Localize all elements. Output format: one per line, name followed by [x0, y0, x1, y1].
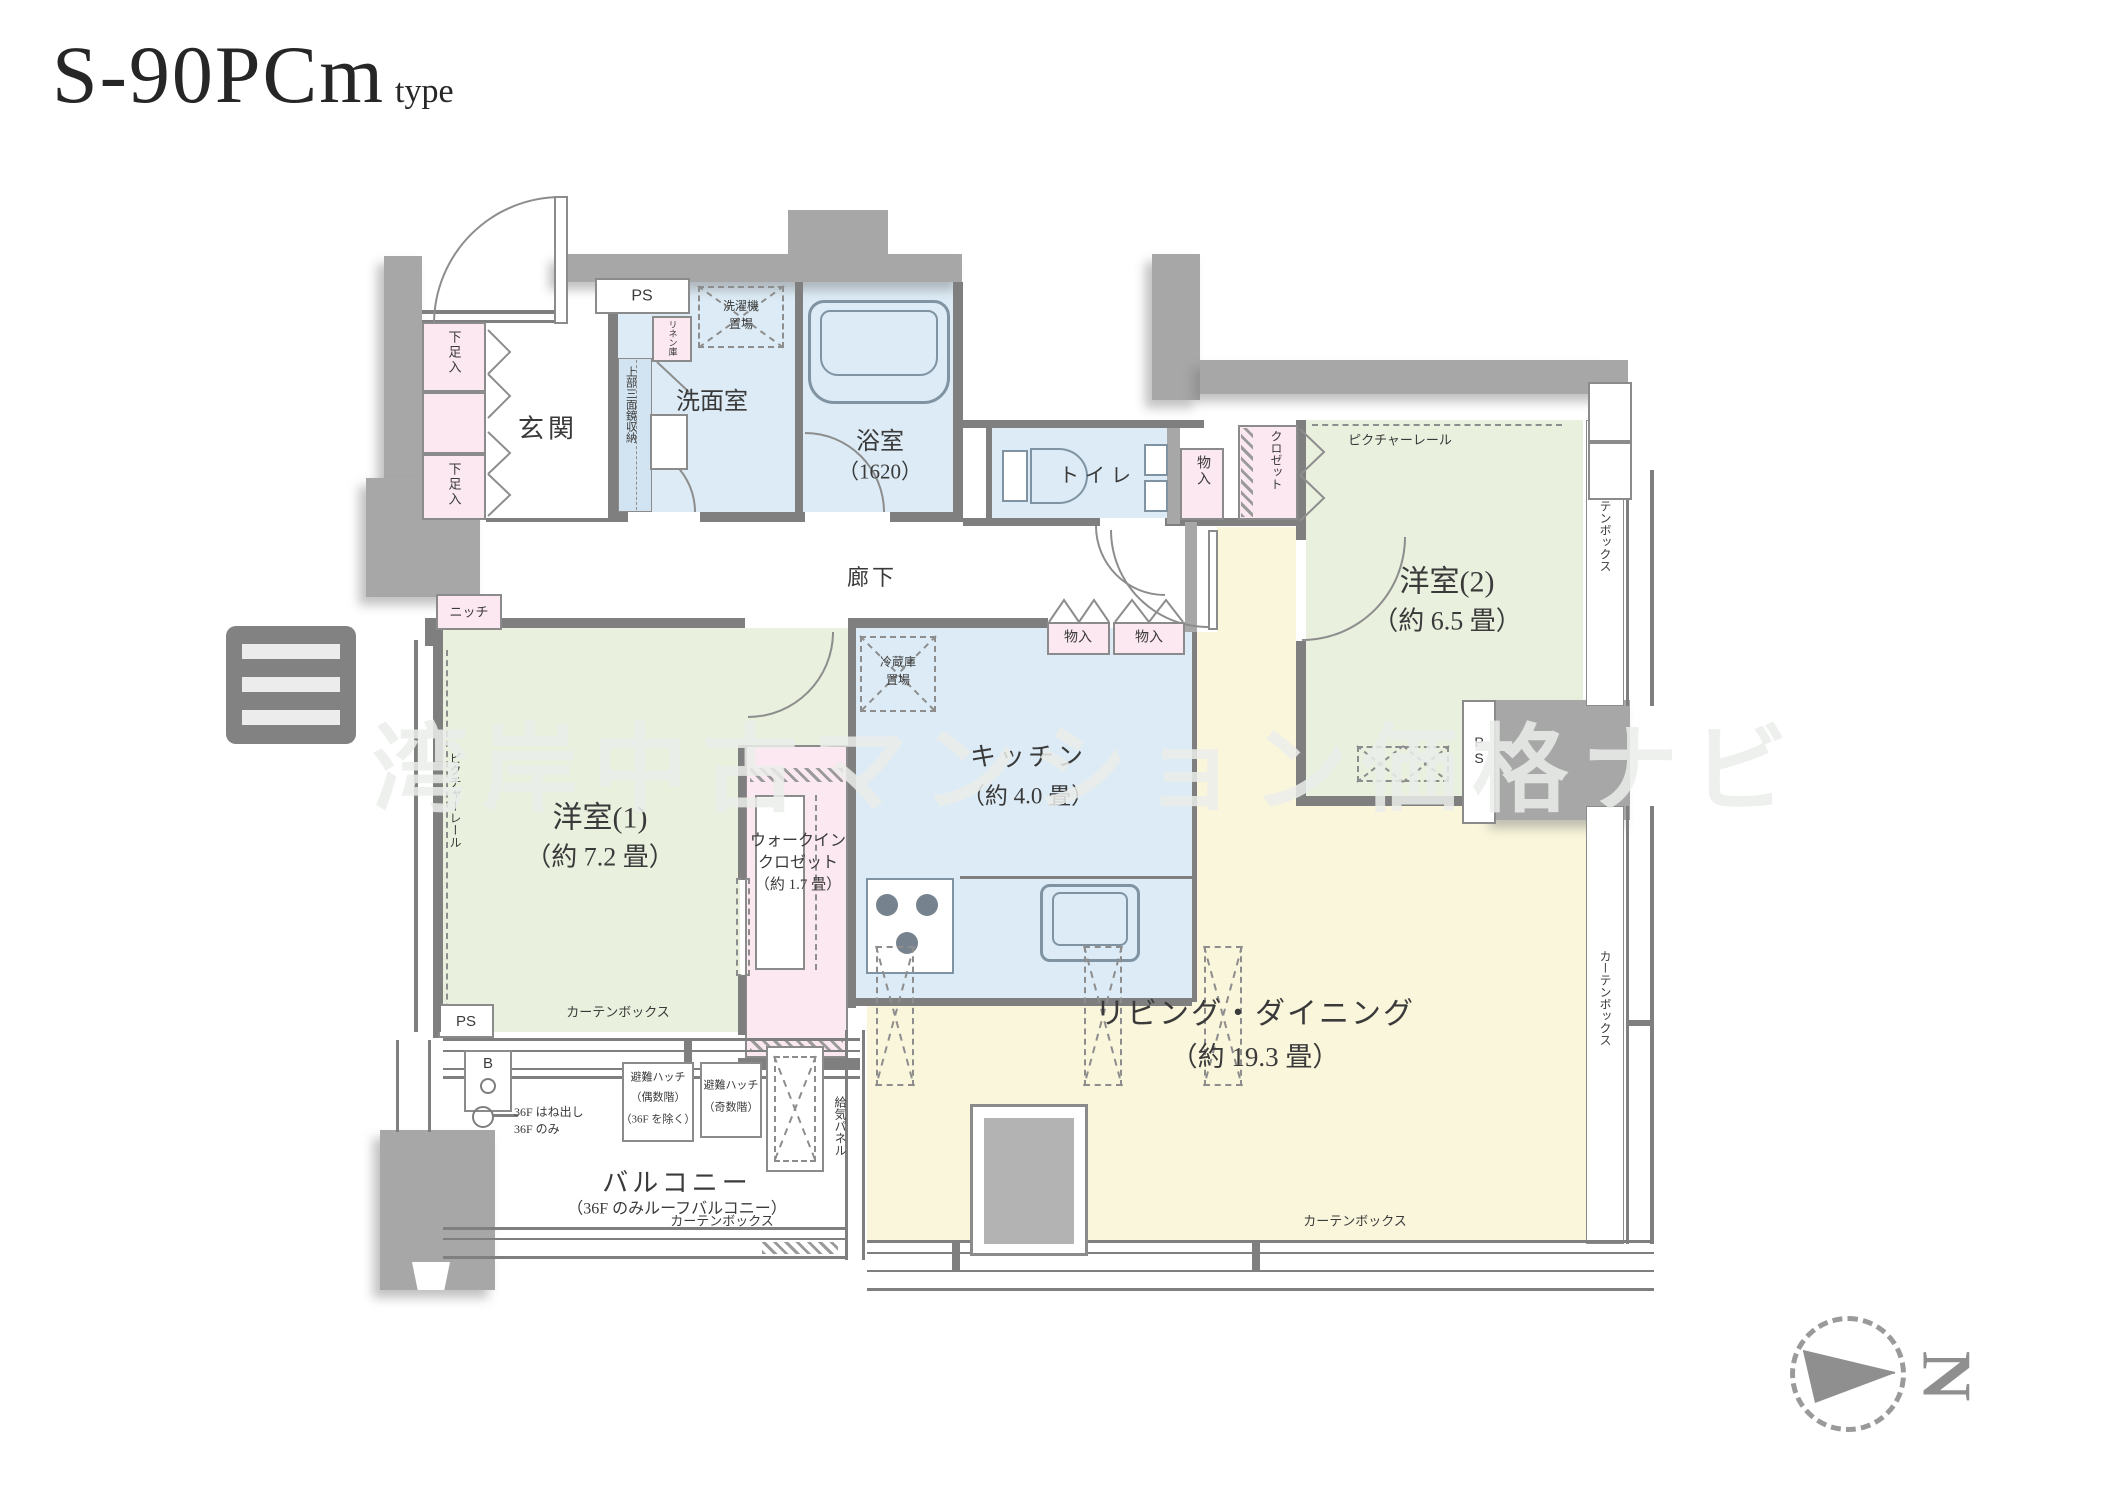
wall — [1152, 254, 1200, 400]
unit-type-name: S-90PCm — [52, 29, 385, 120]
balcony-rail — [443, 1238, 845, 1240]
bedroom2-size-label: （約 6.5 畳） — [1372, 607, 1522, 638]
compass-needle-icon — [1795, 1321, 1901, 1427]
mirror-cabinet-label: 上部三面鏡収納 — [625, 366, 636, 443]
wic-label2: クロゼット — [758, 855, 838, 874]
window — [867, 1270, 1654, 1272]
wall — [986, 428, 992, 522]
shoe-cabinet-label: 下足入 — [448, 330, 461, 375]
burner-icon — [876, 894, 898, 916]
escape-hatch-label: 避難ハッチ — [631, 1072, 686, 1085]
storage-marker-cross — [774, 1056, 816, 1162]
escape-hatch-label: （36F を除く） — [621, 1114, 696, 1127]
window — [443, 1038, 860, 1041]
curtain-box-label: カーテンボックス — [1303, 1213, 1407, 1228]
wall — [953, 282, 963, 522]
wall — [963, 420, 1204, 428]
wall — [608, 512, 628, 522]
entry-step-line — [486, 518, 608, 522]
escape-hatch-label: 避難ハッチ — [704, 1080, 759, 1093]
fridge-space-label2: 置場 — [886, 673, 910, 687]
supply-panel-label: 給気パネル — [834, 1096, 846, 1156]
compass-icon — [1790, 1316, 1906, 1432]
shoe-cabinet — [422, 392, 486, 454]
b-mark-label: B — [483, 1055, 493, 1073]
balcony-rail — [396, 1040, 399, 1132]
toilet-cabinet — [1144, 480, 1168, 512]
washer-space-label: 洗濯機 — [723, 299, 759, 313]
balcony-rail — [428, 1040, 431, 1132]
shoe-cabinet-label: 下足入 — [448, 462, 461, 507]
picture-rail-label: ピクチャーレール — [1348, 432, 1452, 447]
curtain-box-label: カーテンボックス — [1599, 950, 1611, 1046]
hall-storage-label: 物入 — [1135, 631, 1163, 648]
bath-label: 浴室 — [856, 428, 904, 456]
faucet-icon — [480, 1078, 496, 1094]
curtain-box-label: カーテンボックス — [566, 1004, 670, 1019]
wall — [1167, 428, 1180, 524]
balcony-hatch — [762, 1242, 838, 1254]
toilet-tank — [1002, 450, 1028, 502]
f36-note-line1: 36F はね出し — [514, 1104, 584, 1121]
watermark-logo-bar — [242, 677, 340, 692]
entrance-door-swing — [433, 196, 561, 324]
escape-hatch-odd — [700, 1062, 762, 1138]
window — [867, 1288, 1654, 1291]
wall — [788, 210, 888, 256]
balcony-label: バルコニー — [602, 1169, 751, 1200]
living-size-label: （約 19.3 畳） — [1171, 1042, 1340, 1074]
bedroom2-label: 洋室(2) — [1400, 564, 1495, 599]
escape-hatch-label: （奇数階） — [704, 1102, 759, 1115]
folding-door-icon — [1300, 429, 1328, 521]
folding-door-icon — [488, 432, 514, 516]
watermark-logo-bar — [242, 644, 340, 659]
unit-type-suffix: type — [395, 73, 454, 110]
genkan-label: 玄関 — [518, 415, 578, 446]
compass-north-label: N — [1905, 1351, 1985, 1402]
living-label: リビング・ダイニング — [1095, 996, 1415, 1031]
corner-sash — [1588, 442, 1632, 500]
hall-storage-label: 物入 — [1195, 455, 1209, 487]
storage-marker-cross — [876, 946, 914, 1086]
fridge-space-label: 冷蔵庫 — [880, 655, 916, 669]
wic-size-label: （約 1.7 畳） — [755, 877, 841, 895]
wall — [738, 975, 746, 1035]
balcony-rail — [443, 1256, 845, 1259]
watermark-text: 湾岸中古マンション価格ナビ — [372, 692, 1802, 831]
kitchen-sink-inner — [1052, 892, 1128, 946]
wall — [848, 618, 1048, 628]
washer-space-label2: 置場 — [729, 317, 753, 331]
watermark-logo — [226, 626, 356, 744]
faucet-icon — [472, 1106, 494, 1128]
niche-label: ニッチ — [449, 604, 488, 619]
closet-hatch — [1241, 428, 1253, 517]
page-title: S-90PCmtype — [52, 28, 454, 122]
folding-door-icon — [1115, 600, 1183, 622]
wall — [795, 282, 803, 512]
window — [1650, 470, 1654, 706]
window — [1626, 470, 1629, 706]
f36-note-line2: 36F のみ — [514, 1121, 584, 1138]
burner-icon — [916, 894, 938, 916]
escape-hatch-label: （偶数階） — [631, 1092, 686, 1105]
living-pillar — [984, 1118, 1074, 1244]
living-door-panel — [1208, 530, 1218, 630]
toilet-label: トイレ — [1059, 465, 1137, 489]
bathtub-inner — [820, 310, 938, 376]
hall-storage-label: 物入 — [1064, 631, 1092, 648]
pipe-space-label: PS — [456, 1013, 476, 1031]
toilet-cabinet — [1144, 444, 1168, 476]
f36-note: 36F はね出し 36F のみ — [514, 1104, 584, 1138]
bath-size-label: （1620） — [838, 460, 922, 485]
linen-closet-label: リネン庫 — [668, 320, 677, 356]
wall — [700, 512, 805, 522]
vanity-counter — [650, 414, 688, 470]
bedroom2-closet-label: クロゼット — [1270, 430, 1282, 490]
wall — [608, 282, 618, 522]
corner-sash — [1588, 382, 1632, 442]
wic-folding-door — [736, 878, 750, 976]
wic-label: ウォークイン — [750, 833, 846, 852]
wall — [384, 256, 422, 486]
washroom-label: 洗面室 — [676, 388, 748, 416]
wall — [890, 512, 960, 522]
wall — [963, 518, 1100, 526]
pipe-space-label: PS — [631, 288, 652, 307]
balcony-wall — [862, 1030, 865, 1260]
floor-plan: S-90PCmtype — [0, 0, 2120, 1500]
window-mullion — [1252, 1240, 1260, 1272]
room-living — [1217, 527, 1296, 632]
pillar-notch — [412, 1262, 450, 1290]
corridor-label: 廊下 — [847, 565, 897, 591]
balcony-rail — [443, 1227, 845, 1230]
watermark-logo-bar — [242, 710, 340, 725]
folding-door-icon — [488, 330, 514, 418]
wall — [1200, 360, 1604, 394]
bedroom1-size-label: （約 7.2 畳） — [525, 843, 675, 874]
window-mullion — [1626, 1020, 1654, 1026]
curtain-box-label: カーテンボックス — [670, 1213, 774, 1228]
folding-door-icon — [1049, 600, 1109, 622]
picture-rail-line — [1312, 424, 1562, 426]
kitchen-counter-line — [960, 876, 1192, 879]
window-mullion — [952, 1240, 960, 1272]
